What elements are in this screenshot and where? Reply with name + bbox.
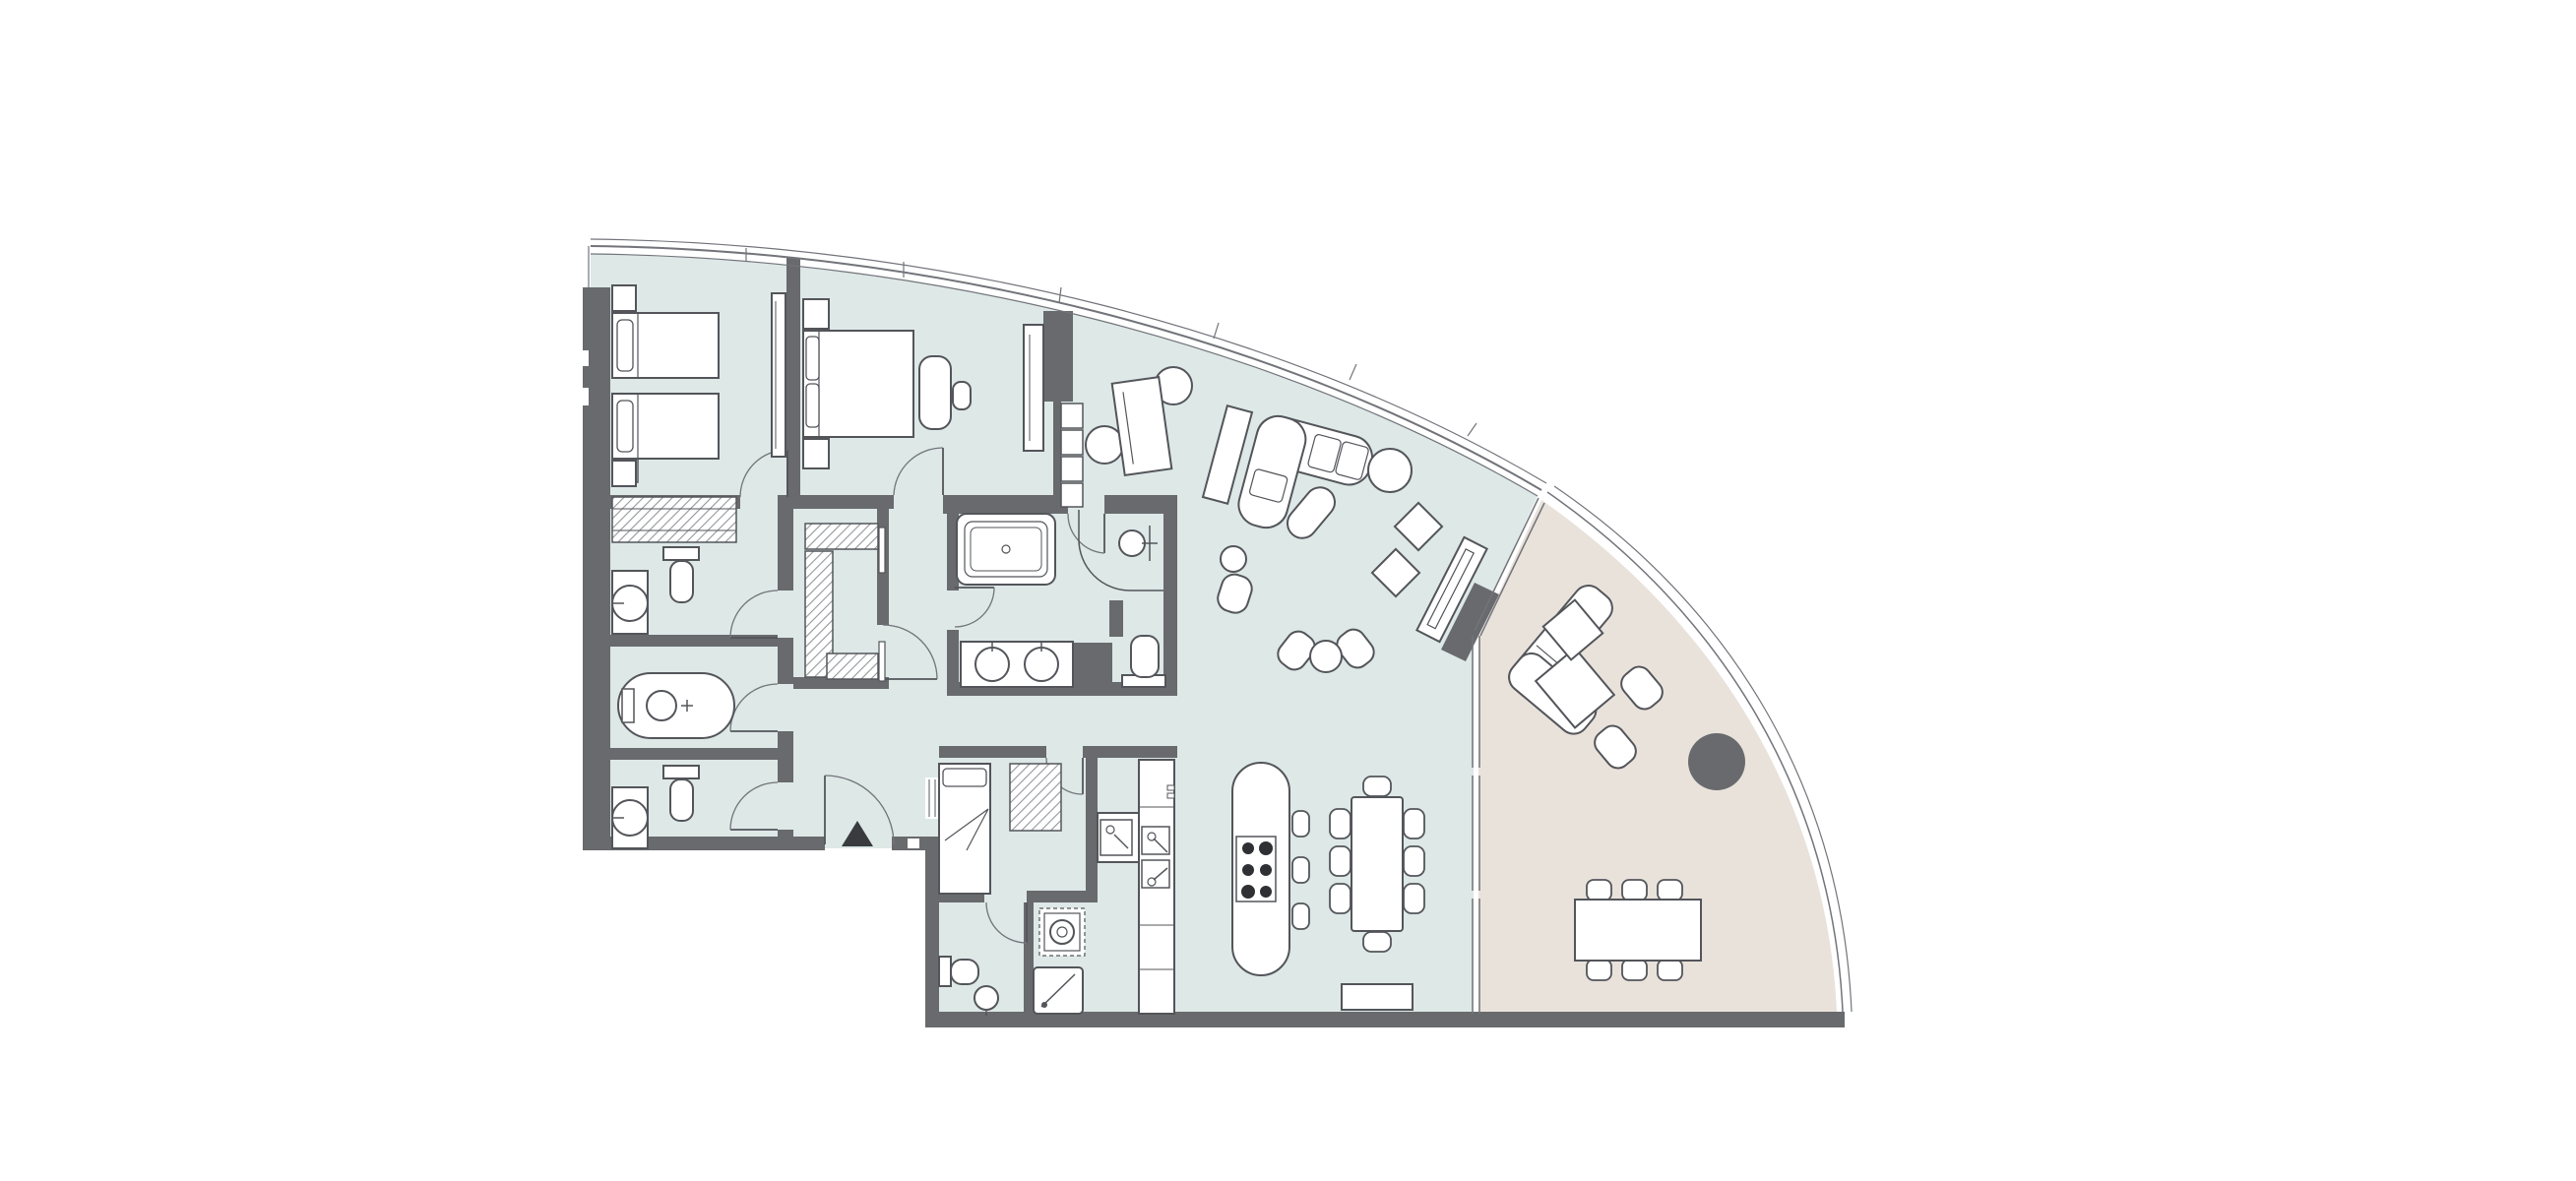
powder-cistern: [622, 689, 634, 722]
twin-nightstand-b: [612, 461, 636, 486]
dining-chair-b: [1363, 932, 1391, 952]
outdoor-dining-chair-t1: [1587, 880, 1611, 901]
wall-bath1-south: [583, 635, 778, 647]
dining-chair-r2: [1404, 846, 1424, 876]
master-bed: [803, 331, 913, 437]
mullion-tick-6: [1468, 423, 1476, 436]
twin-bed-b-pillow: [617, 401, 633, 452]
bath1-toilet-bowl: [670, 561, 693, 602]
wall-twin-master: [786, 258, 800, 507]
wall-mbath-cabinet: [1073, 643, 1112, 686]
wall-column: [1043, 311, 1073, 402]
shower-tray-drain: [1041, 1002, 1047, 1008]
wall-left: [583, 287, 610, 848]
burner-2: [1259, 841, 1273, 855]
fridge-handle-a: [1167, 785, 1174, 790]
bath1-toilet-tank: [663, 547, 699, 560]
dining-chair-t: [1363, 777, 1391, 796]
wall-hall-east-d: [778, 760, 793, 782]
dining-table: [1351, 797, 1403, 931]
shower-head: [1119, 530, 1145, 556]
wall-powder-south: [583, 748, 778, 760]
shelf-box-2: [1061, 430, 1083, 455]
maid-wardrobe: [1010, 764, 1061, 831]
closet-rod-a: [879, 528, 885, 573]
burner-4: [1260, 864, 1272, 876]
wall-hall-east-e: [778, 830, 793, 848]
sofa-pouf: [1221, 546, 1246, 572]
side-table: [1368, 449, 1412, 492]
wall-laundry-divider: [1024, 902, 1034, 1016]
bath3-toilet-tank: [663, 766, 699, 778]
maid-bed-pillow: [943, 769, 986, 786]
washer-drum-inner: [1057, 927, 1067, 937]
burner-5: [1241, 885, 1255, 899]
bar-stool-c: [1292, 903, 1309, 929]
mullion-tick-5: [1350, 364, 1356, 380]
master-bed-pillow-b: [806, 384, 819, 427]
wall-master-south-a: [793, 495, 894, 509]
wall-hall-east-b: [778, 638, 793, 684]
shelf-box-4: [1061, 483, 1083, 507]
maid-wc-basin: [974, 986, 998, 1010]
wall-left-notch-b: [579, 388, 589, 405]
dining-chair-l3: [1330, 884, 1351, 913]
mbath-basin-b: [1025, 648, 1058, 681]
wall-window-slit: [908, 839, 919, 848]
fridge-handle-b: [1167, 793, 1174, 798]
bath1-wardrobe: [612, 497, 736, 542]
burner-6: [1260, 886, 1272, 898]
wall-mbath-east: [1163, 495, 1177, 696]
dining-chair-l1: [1330, 809, 1351, 839]
bathtub-drain: [1002, 545, 1010, 553]
burner-3: [1242, 864, 1254, 876]
wall-hall-east-a: [778, 495, 793, 590]
lounge-table: [1310, 641, 1342, 672]
master-nightstand-a: [803, 299, 829, 329]
floor-plan-svg: [0, 0, 2576, 1181]
bar-stool-a: [1292, 811, 1309, 837]
master-nightstand-b: [803, 439, 829, 468]
wall-lower-left-vert: [925, 837, 939, 1026]
outdoor-dining-chair-t2: [1622, 880, 1647, 901]
wall-kitchen-north-a: [939, 746, 1046, 758]
wall-shelf-back: [1053, 402, 1061, 507]
dining-chair-l2: [1330, 846, 1351, 876]
master-tv-panel: [1024, 325, 1043, 451]
wall-wc-stub: [1109, 600, 1123, 637]
floor-plan-page: [0, 0, 2576, 1181]
console-bench: [1342, 984, 1413, 1010]
mullion-tick-4: [1214, 323, 1219, 339]
wall-maid-east: [1086, 758, 1098, 896]
twin-dresser: [772, 293, 785, 457]
master-armchair: [919, 356, 951, 429]
closet-shelf-bottom: [827, 653, 878, 679]
wall-hall-east-c: [778, 731, 793, 760]
wall-entry-stub: [799, 839, 825, 850]
maid-wc-bowl: [951, 960, 978, 984]
outdoor-dining-chair-b3: [1658, 960, 1682, 980]
desk-chair-b: [1086, 426, 1123, 464]
burner-1: [1242, 842, 1254, 854]
wall-kitchen-north-b: [1083, 746, 1177, 758]
fire-table: [1688, 733, 1745, 790]
dining-chair-r3: [1404, 884, 1424, 913]
twin-bed-a-pillow: [617, 320, 633, 371]
mbath-toilet-bowl: [1131, 636, 1159, 677]
closet-rod-b: [879, 642, 885, 681]
powder-basin: [647, 691, 676, 720]
bath3-toilet-bowl: [670, 779, 693, 821]
maid-wc-tank: [939, 957, 951, 986]
closet-shelf-top: [805, 524, 878, 549]
outdoor-dining-chair-b2: [1622, 960, 1647, 980]
shelf-box-1: [1061, 404, 1083, 428]
mbath-basin-a: [975, 648, 1009, 681]
twin-nightstand-a: [612, 285, 636, 311]
shelf-box-3: [1061, 457, 1083, 481]
master-bed-pillow-a: [806, 337, 819, 380]
wall-left-notch-a: [579, 350, 589, 366]
bar-stool-b: [1292, 857, 1309, 883]
master-ottoman: [953, 382, 971, 409]
kitchen-sink-c-drain: [1106, 826, 1114, 834]
dining-chair-r1: [1404, 809, 1424, 839]
wall-maid-south-b: [1027, 891, 1098, 902]
maid-window: [925, 777, 939, 819]
outdoor-dining-chair-t3: [1658, 880, 1682, 901]
outdoor-dining-chair-b1: [1587, 960, 1611, 980]
wall-master-south-b: [943, 495, 1068, 514]
outdoor-dining-table: [1575, 900, 1701, 961]
